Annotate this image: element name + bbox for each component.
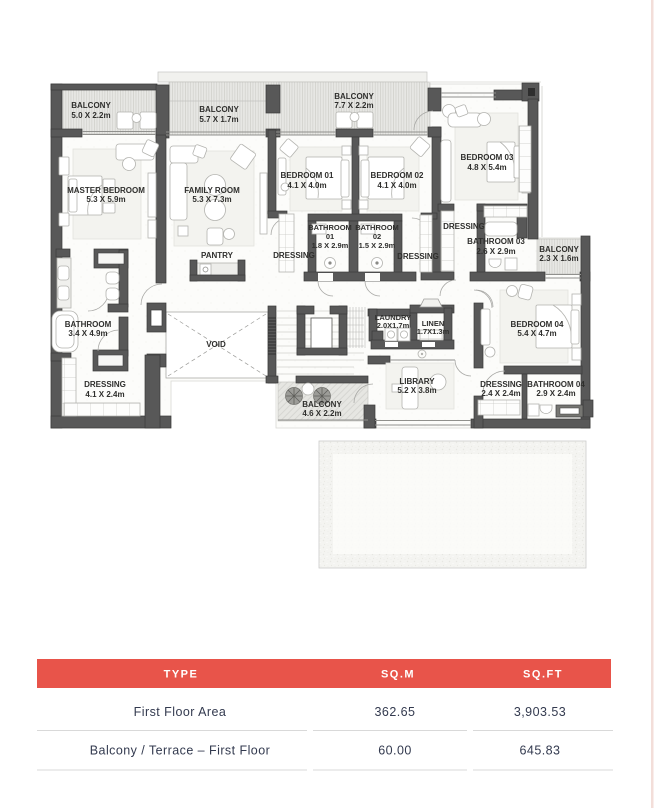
svg-text:645.83: 645.83: [520, 744, 561, 758]
svg-text:First Floor Area: First Floor Area: [134, 705, 227, 719]
svg-text:BEDROOM 03: BEDROOM 03: [461, 153, 514, 162]
svg-text:60.00: 60.00: [378, 744, 412, 758]
svg-text:FAMILY ROOM: FAMILY ROOM: [184, 186, 240, 195]
svg-text:2.6 X 2.9m: 2.6 X 2.9m: [476, 247, 515, 256]
svg-text:4.1 X 4.0m: 4.1 X 4.0m: [287, 181, 326, 190]
svg-text:MASTER BEDROOM: MASTER BEDROOM: [67, 186, 145, 195]
svg-text:01: 01: [326, 232, 334, 241]
svg-text:BATHROOM: BATHROOM: [355, 223, 399, 232]
svg-text:DRESSING: DRESSING: [480, 380, 522, 389]
svg-text:362.65: 362.65: [375, 705, 416, 719]
svg-text:5.0 X 2.2m: 5.0 X 2.2m: [71, 111, 110, 120]
svg-text:4.1 X 2.4m: 4.1 X 2.4m: [85, 390, 124, 399]
svg-text:LIBRARY: LIBRARY: [399, 377, 435, 386]
svg-text:4.8 X 5.4m: 4.8 X 5.4m: [467, 163, 506, 172]
svg-text:4.6 X 2.2m: 4.6 X 2.2m: [302, 409, 341, 418]
svg-text:BALCONY: BALCONY: [302, 400, 342, 409]
svg-text:5.4 X 4.7m: 5.4 X 4.7m: [517, 329, 556, 338]
svg-text:3,903.53: 3,903.53: [514, 705, 566, 719]
svg-text:5.3 X 5.9m: 5.3 X 5.9m: [86, 195, 125, 204]
svg-text:5.7 X 1.7m: 5.7 X 1.7m: [199, 115, 238, 124]
svg-text:BATHROOM: BATHROOM: [65, 320, 112, 329]
svg-text:5.2 X 3.8m: 5.2 X 3.8m: [397, 386, 436, 395]
svg-text:DRESSING: DRESSING: [273, 251, 315, 260]
svg-text:BEDROOM 02: BEDROOM 02: [371, 171, 424, 180]
svg-text:3.4 X 4.9m: 3.4 X 4.9m: [68, 329, 107, 338]
svg-text:DRESSING: DRESSING: [397, 252, 439, 261]
svg-text:BATHROOM: BATHROOM: [308, 223, 352, 232]
svg-text:7.7 X 2.2m: 7.7 X 2.2m: [334, 101, 373, 110]
svg-text:BALCONY: BALCONY: [199, 105, 239, 114]
svg-text:DRESSING: DRESSING: [84, 380, 126, 389]
svg-text:2.4 X 2.4m: 2.4 X 2.4m: [481, 389, 520, 398]
svg-text:4.1 X 4.0m: 4.1 X 4.0m: [377, 181, 416, 190]
svg-text:1.5 X 2.9m: 1.5 X 2.9m: [359, 241, 396, 250]
svg-text:BEDROOM 04: BEDROOM 04: [511, 320, 564, 329]
svg-text:BEDROOM 01: BEDROOM 01: [281, 171, 334, 180]
svg-text:SQ.M: SQ.M: [381, 669, 415, 681]
svg-text:2.9 X 2.4m: 2.9 X 2.4m: [536, 389, 575, 398]
svg-text:PANTRY: PANTRY: [201, 251, 234, 260]
svg-text:VOID: VOID: [206, 340, 226, 349]
svg-text:2.0X1.7m: 2.0X1.7m: [377, 321, 410, 330]
svg-text:02: 02: [373, 232, 381, 241]
svg-text:BATHROOM 03: BATHROOM 03: [467, 237, 525, 246]
svg-text:DRESSING: DRESSING: [443, 222, 485, 231]
svg-text:BALCONY: BALCONY: [539, 245, 579, 254]
svg-text:TYPE: TYPE: [164, 669, 199, 681]
svg-text:BATHROOM 04: BATHROOM 04: [527, 380, 585, 389]
svg-text:Balcony / Terrace – First Floo: Balcony / Terrace – First Floor: [90, 744, 270, 758]
svg-text:SQ.FT: SQ.FT: [523, 669, 563, 681]
svg-text:BALCONY: BALCONY: [334, 92, 374, 101]
svg-text:5.3 X 7.3m: 5.3 X 7.3m: [192, 195, 231, 204]
svg-text:1.8 X 2.9m: 1.8 X 2.9m: [312, 241, 349, 250]
svg-text:2.3 X 1.6m: 2.3 X 1.6m: [539, 254, 578, 263]
svg-text:1.7X1.3m: 1.7X1.3m: [417, 327, 450, 336]
svg-text:BALCONY: BALCONY: [71, 101, 111, 110]
